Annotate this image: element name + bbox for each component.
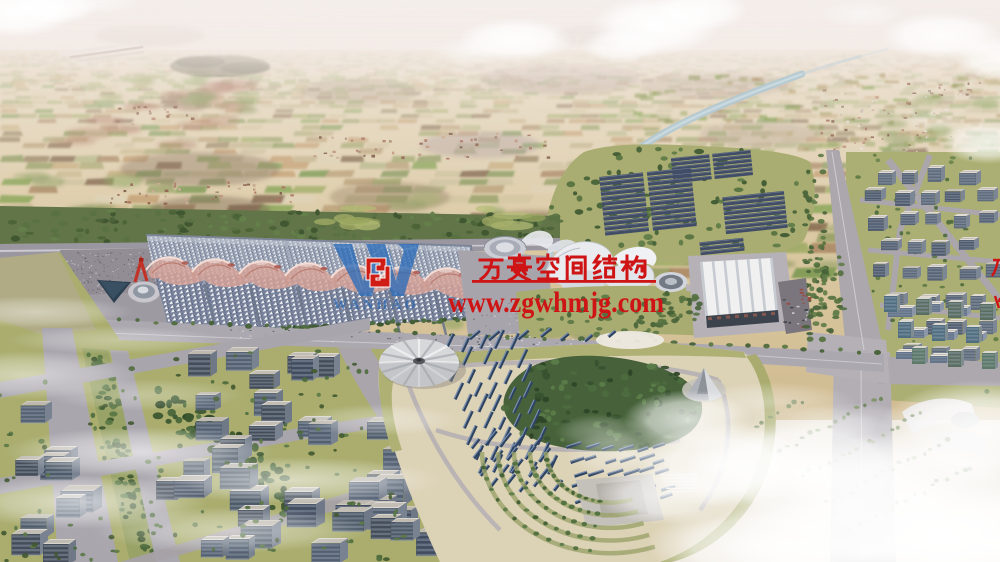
svg-text:www.zgwhmjg.com: www.zgwhmjg.com (448, 286, 664, 319)
svg-text:WANHAO: WANHAO (333, 297, 419, 313)
